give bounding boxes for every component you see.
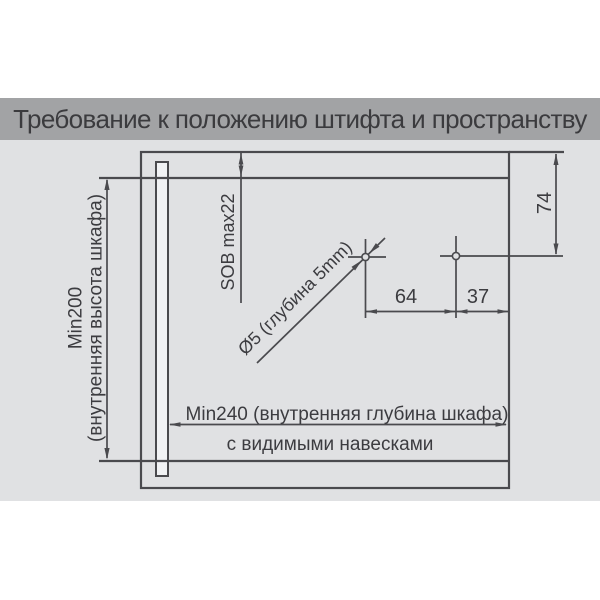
pin-hole-back — [452, 252, 459, 259]
depth-dim-label: Min240 (внутренняя глубина шкафа) — [186, 404, 509, 425]
dim-64-label: 64 — [395, 286, 417, 308]
page-title: Требование к положению штифта и простран… — [13, 104, 587, 135]
height-dim-label-line2: (внутренняя высота шкафа) — [86, 194, 107, 442]
top-clearance-label: SOB max22 — [218, 193, 238, 290]
dim-74-label: 74 — [534, 192, 556, 214]
title-bar: Требование к положению штифта и простран… — [0, 98, 600, 140]
technical-drawing: Min200 (внутренняя высота шкафа) SOB max… — [0, 140, 600, 501]
side-panel-bar — [156, 162, 168, 476]
height-dim-label-line1: Min200 — [66, 287, 87, 349]
hinge-note-label: с видимыми навесками — [227, 434, 434, 455]
pin-hole-front — [362, 253, 369, 260]
dim-37-label: 37 — [467, 286, 489, 308]
page: Требование к положению штифта и простран… — [0, 0, 600, 600]
